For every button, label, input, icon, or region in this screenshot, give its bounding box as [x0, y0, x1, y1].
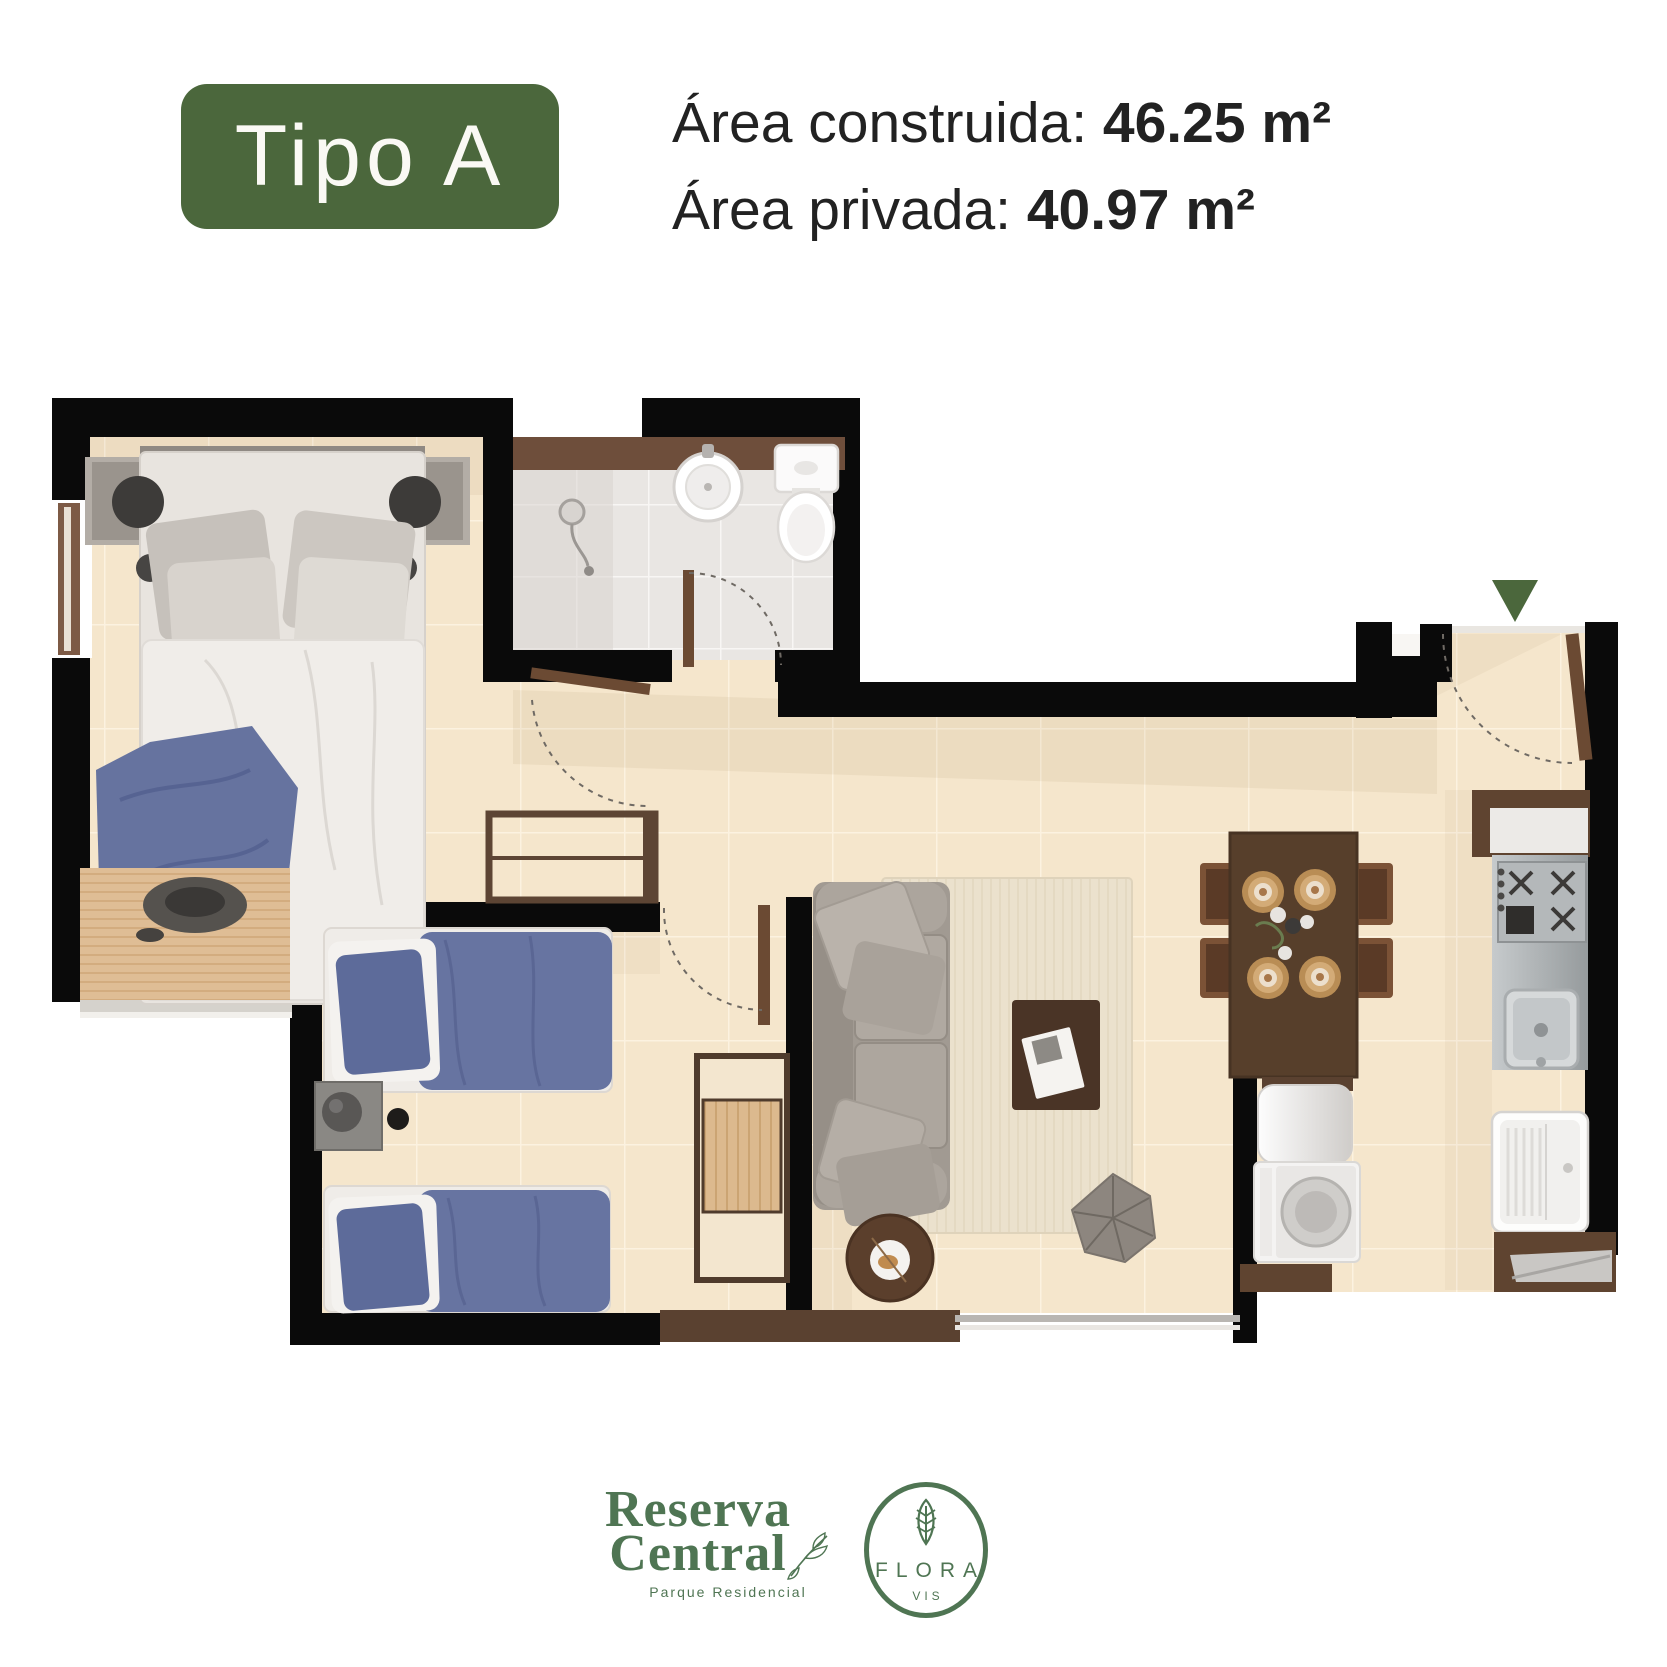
brand-name-line2: Central — [609, 1525, 786, 1582]
kitchen-sink — [1505, 990, 1578, 1068]
dining-chair — [1353, 938, 1393, 998]
washing-machine — [1254, 1162, 1360, 1262]
wardrobe-closet — [697, 1056, 787, 1280]
secondary-bedroom-door — [758, 905, 770, 1025]
laundry-area — [1240, 1085, 1360, 1292]
dining-table — [1230, 833, 1357, 1077]
bathroom-door — [683, 570, 694, 667]
kitchen-base-cabinet — [1494, 1232, 1616, 1292]
dining-chair — [1353, 863, 1393, 925]
flyer-page: Tipo A Área construida: 46.25 m² Área pr… — [0, 0, 1667, 1667]
flora-leaf-icon — [909, 1498, 943, 1553]
entrance-arrow-icon — [1492, 580, 1538, 622]
floor-plan — [0, 0, 1667, 1667]
flora-name: FLORA — [867, 1559, 985, 1583]
stove — [1498, 862, 1587, 942]
coffee-table — [1012, 1000, 1100, 1110]
laundry-sink — [1492, 1112, 1588, 1232]
leaf-sprig-icon — [787, 1528, 833, 1586]
bedside-lamp — [112, 476, 164, 528]
fridge-counter — [1472, 790, 1590, 857]
single-bed — [324, 1186, 610, 1314]
single-bed — [324, 928, 612, 1092]
living-south-sill — [660, 1310, 1240, 1342]
flora-vis-logo: FLORA VIS — [864, 1482, 988, 1618]
brand-subtitle: Parque Residencial — [628, 1584, 828, 1600]
reserva-central-logo: Reserva Central Parque Residencial — [568, 1488, 828, 1600]
shower-head — [560, 500, 584, 524]
bedside-lamp — [389, 476, 441, 528]
brand-row: Reserva Central Parque Residencial FLO — [0, 1470, 1667, 1640]
side-table — [847, 1215, 933, 1301]
sofa — [812, 879, 950, 1228]
flora-subtitle: VIS — [908, 1589, 943, 1603]
water-heater — [1258, 1085, 1352, 1163]
